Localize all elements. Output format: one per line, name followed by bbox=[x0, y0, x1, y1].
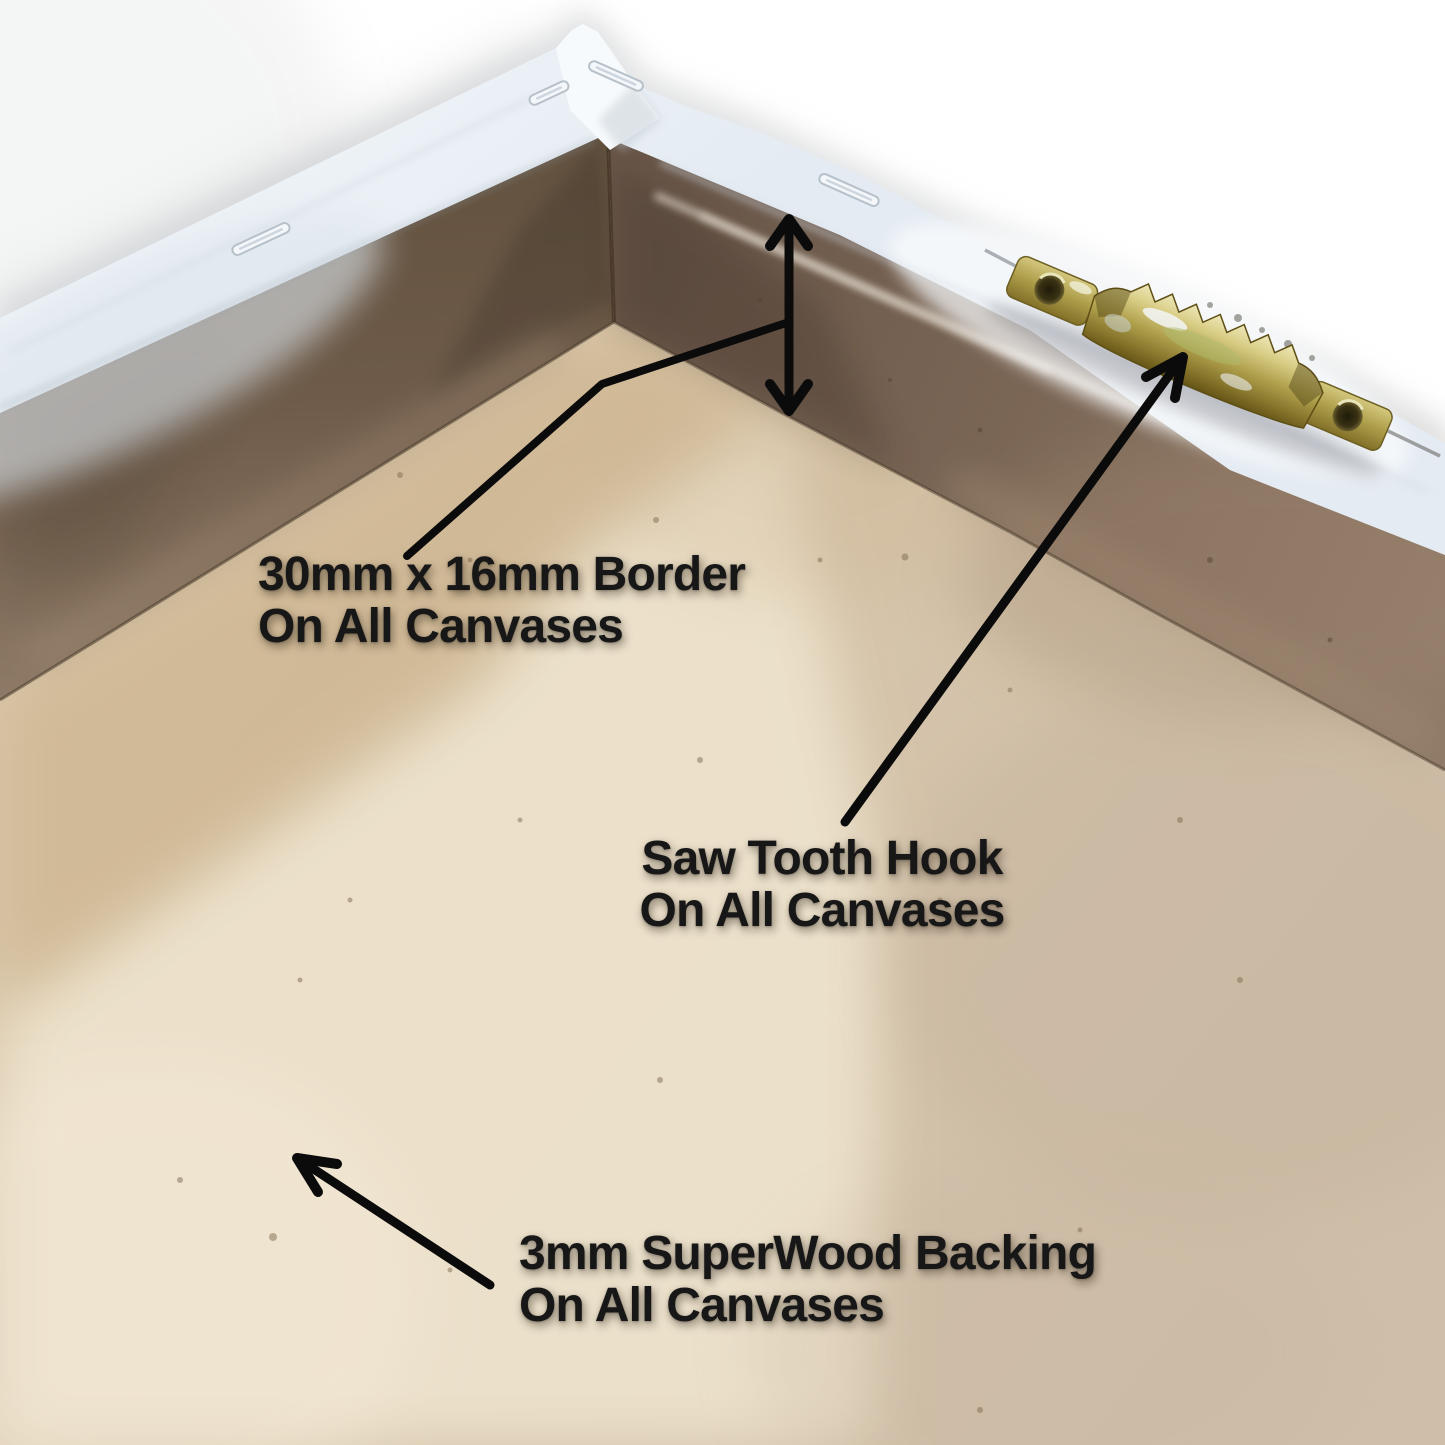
backing-label-line1: 3mm SuperWood Backing bbox=[519, 1228, 1096, 1280]
border-label: 30mm x 16mm Border On All Canvases bbox=[258, 549, 745, 653]
saw-tooth-label-line2: On All Canvases bbox=[572, 885, 1072, 937]
backing-label: 3mm SuperWood Backing On All Canvases bbox=[519, 1228, 1096, 1332]
border-label-line2: On All Canvases bbox=[258, 601, 745, 653]
border-label-line1: 30mm x 16mm Border bbox=[258, 549, 745, 601]
backing-label-line2: On All Canvases bbox=[519, 1280, 1096, 1332]
saw-tooth-label-line1: Saw Tooth Hook bbox=[572, 833, 1072, 885]
saw-tooth-label: Saw Tooth Hook On All Canvases bbox=[572, 833, 1072, 937]
annotated-canvas-back-photo: 30mm x 16mm Border On All Canvases Saw T… bbox=[0, 0, 1445, 1445]
